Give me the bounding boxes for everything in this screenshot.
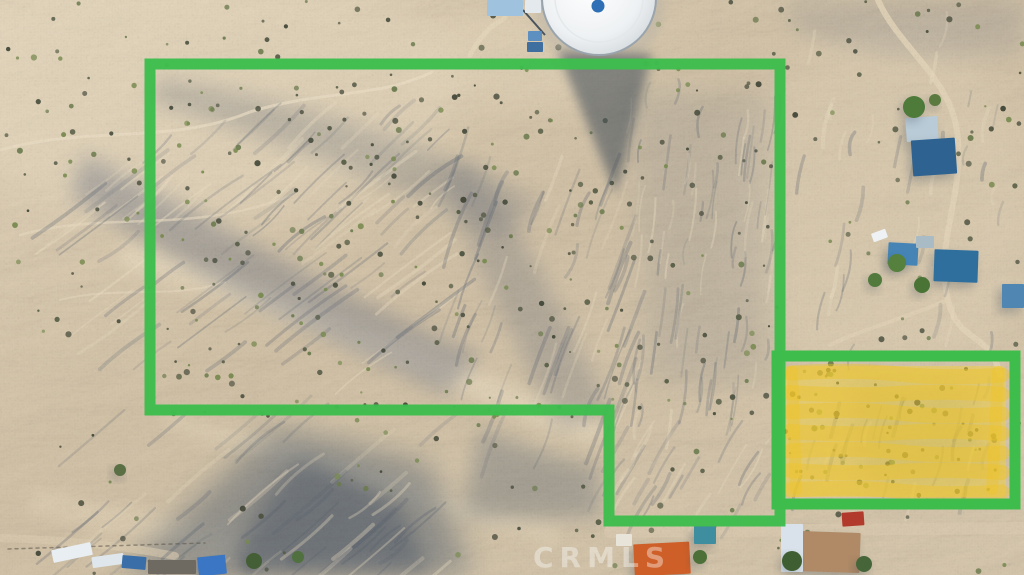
bottom-blue-roof bbox=[197, 555, 227, 575]
highlighter-stroke bbox=[790, 431, 1002, 434]
aerial-photo-canvas: CRMLS bbox=[0, 0, 1024, 575]
tree bbox=[782, 551, 802, 571]
red-roof-shed bbox=[842, 511, 865, 527]
highlighter-stroke bbox=[790, 371, 1002, 377]
tree bbox=[888, 254, 906, 272]
homestead-main bbox=[933, 249, 978, 283]
facility-tank-lower bbox=[527, 42, 543, 52]
highlighter-stroke bbox=[790, 449, 1002, 455]
tree bbox=[903, 96, 925, 118]
tree bbox=[292, 551, 304, 563]
tree bbox=[693, 550, 707, 564]
junk-pile bbox=[148, 560, 196, 574]
tree bbox=[914, 277, 930, 293]
water-tank-vent bbox=[592, 0, 605, 13]
aerial-photo: CRMLS bbox=[0, 0, 1024, 575]
facility-shed bbox=[525, 0, 541, 13]
teal-building bbox=[694, 526, 716, 544]
highlighter-stroke bbox=[790, 410, 1002, 416]
tree bbox=[114, 464, 126, 476]
tan-roof-house bbox=[797, 531, 860, 573]
watermark-text: CRMLS bbox=[533, 541, 671, 574]
highlighter-stroke bbox=[792, 372, 796, 489]
blue-tarp bbox=[121, 555, 146, 570]
hillside-house-main bbox=[911, 138, 957, 177]
highlighter-stroke bbox=[992, 372, 998, 489]
highlighter-stroke bbox=[790, 488, 1002, 494]
facility-tank-upper bbox=[528, 31, 542, 41]
tree bbox=[868, 273, 882, 287]
tree bbox=[246, 553, 262, 569]
tree bbox=[929, 94, 941, 106]
facility-building bbox=[487, 0, 523, 16]
highlighter-stroke bbox=[790, 392, 1002, 395]
roadside-structure bbox=[1002, 284, 1024, 308]
homestead-shed bbox=[916, 236, 934, 248]
tree bbox=[856, 556, 872, 572]
highlighter-stroke bbox=[790, 470, 1002, 473]
